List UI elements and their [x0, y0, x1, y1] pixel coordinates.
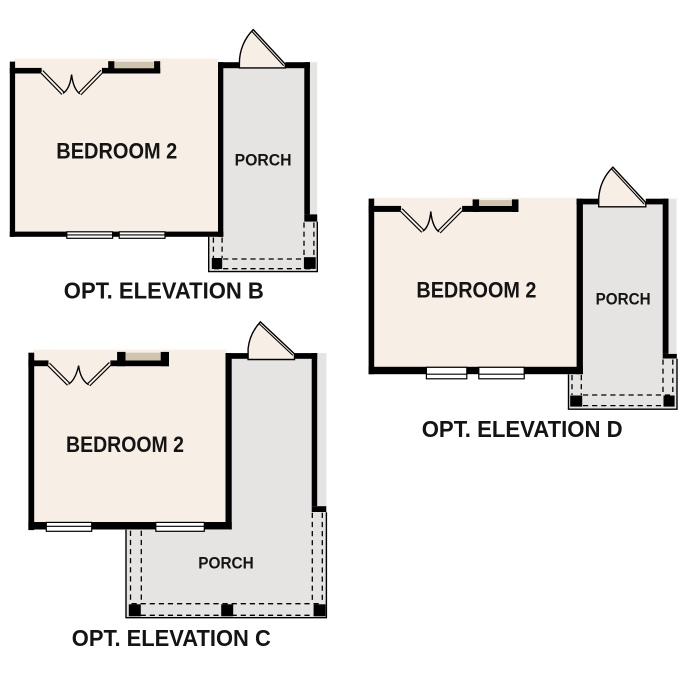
- svg-text:OPT. ELEVATION D: OPT. ELEVATION D: [422, 416, 623, 442]
- svg-text:OPT. ELEVATION B: OPT. ELEVATION B: [64, 278, 264, 304]
- svg-text:BEDROOM 2: BEDROOM 2: [56, 139, 177, 164]
- svg-text:BEDROOM 2: BEDROOM 2: [66, 432, 184, 457]
- svg-text:PORCH: PORCH: [198, 553, 254, 572]
- svg-text:BEDROOM 2: BEDROOM 2: [416, 278, 536, 303]
- svg-text:PORCH: PORCH: [235, 150, 292, 169]
- svg-text:OPT. ELEVATION C: OPT. ELEVATION C: [72, 625, 271, 651]
- svg-text:PORCH: PORCH: [596, 290, 651, 309]
